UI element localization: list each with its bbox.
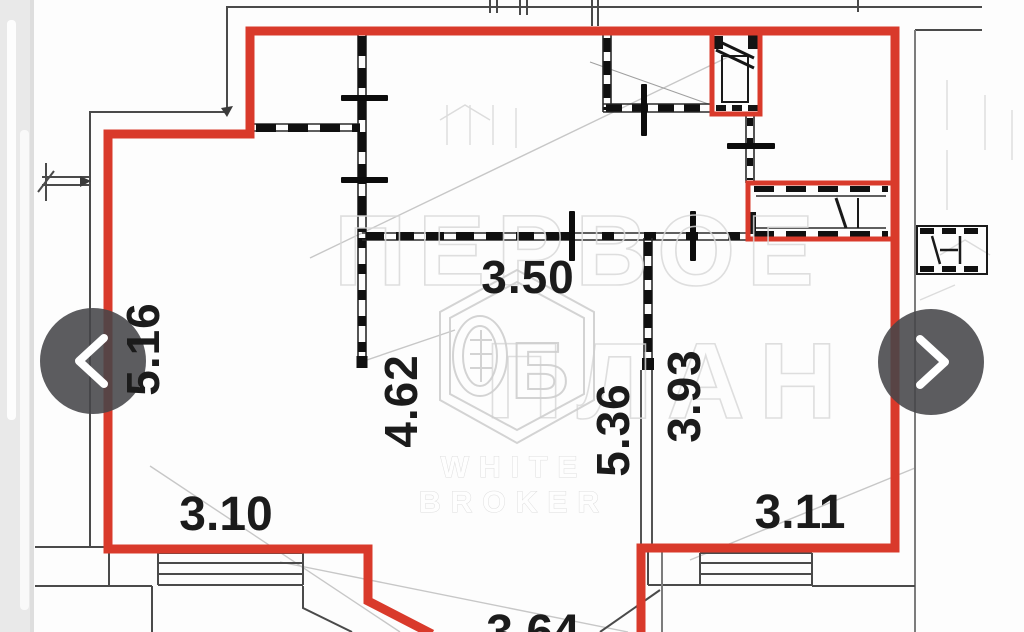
dim-right-room-height: 3.93 (658, 349, 710, 443)
dim-hall-height: 4.62 (375, 354, 427, 448)
dim-bay-width: 3.64 (486, 606, 580, 632)
dim-hall-width: 3.50 (481, 251, 575, 303)
listing-photo-viewer: ПЕРВОЕ ПЛАН Б WHITE BROKER 5.16 4.62 5.3… (0, 0, 1024, 632)
watermark-text-line1: ПЕРВОЕ (334, 195, 825, 307)
brand-line1: WHITE (441, 451, 588, 484)
floor-plan-image: ПЕРВОЕ ПЛАН Б WHITE BROKER 5.16 4.62 5.3… (0, 0, 1024, 632)
logo-letter: Б (511, 326, 569, 415)
next-photo-button-circle[interactable] (878, 309, 984, 415)
dim-left-room-width: 3.10 (179, 488, 272, 541)
dim-right-room-width: 3.11 (755, 486, 846, 539)
next-photo-button[interactable] (878, 309, 984, 415)
carousel-edge-strip (0, 0, 34, 632)
dim-left-room-height: 5.16 (117, 302, 169, 396)
dim-center-room-height: 5.36 (587, 383, 639, 477)
brand-line2: BROKER (419, 486, 609, 519)
